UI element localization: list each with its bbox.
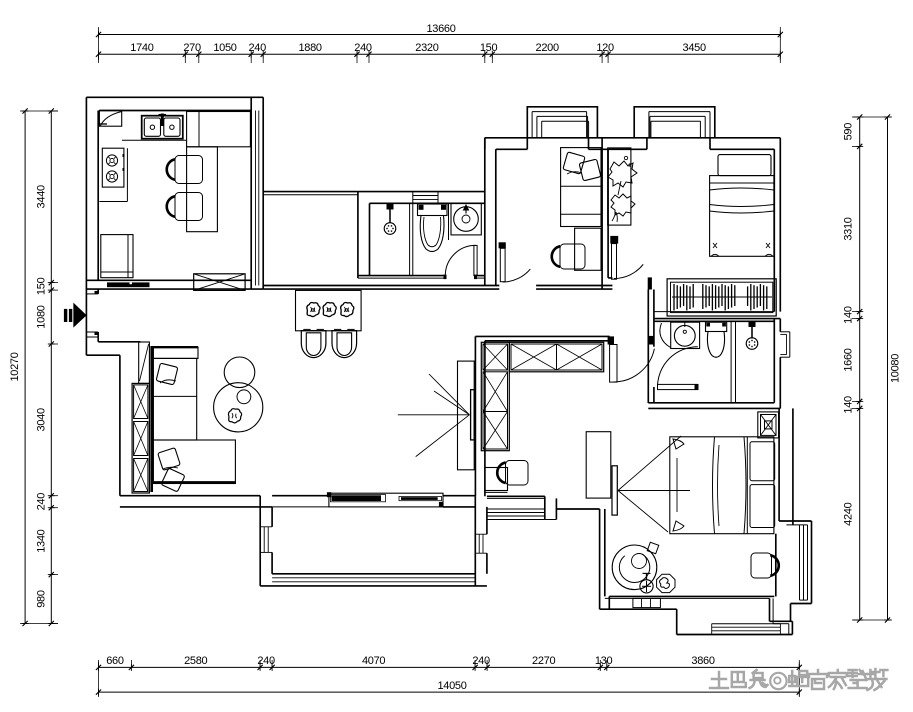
svg-text:240: 240 [472,655,490,667]
svg-text:660: 660 [106,655,124,667]
svg-text:1050: 1050 [213,42,236,54]
svg-text:2270: 2270 [532,655,555,667]
svg-text:2580: 2580 [184,655,207,667]
svg-text:140: 140 [843,306,855,324]
svg-text:240: 240 [248,42,266,54]
svg-text:13660: 13660 [426,23,455,35]
svg-text:3440: 3440 [36,185,48,208]
svg-text:150: 150 [36,277,48,295]
svg-text:3450: 3450 [683,42,706,54]
svg-text:1080: 1080 [36,305,48,328]
svg-text:120: 120 [596,42,614,54]
svg-text:3860: 3860 [691,655,714,667]
svg-text:14050: 14050 [437,680,466,692]
svg-text:240: 240 [36,493,48,511]
svg-text:2200: 2200 [536,42,559,54]
svg-text:10270: 10270 [9,352,21,381]
svg-text:3310: 3310 [843,217,855,240]
svg-text:2320: 2320 [415,42,438,54]
svg-text:150: 150 [480,42,498,54]
svg-text:10080: 10080 [890,354,902,383]
svg-text:1880: 1880 [298,42,321,54]
svg-text:3040: 3040 [36,408,48,431]
svg-text:130: 130 [595,655,613,667]
svg-text:1340: 1340 [36,529,48,552]
svg-text:140: 140 [843,396,855,414]
svg-text:1740: 1740 [130,42,153,54]
svg-text:240: 240 [257,655,275,667]
svg-text:270: 270 [183,42,201,54]
svg-text:980: 980 [36,590,48,608]
svg-text:4240: 4240 [843,502,855,525]
svg-text:590: 590 [843,123,855,141]
svg-text:240: 240 [354,42,372,54]
svg-text:4070: 4070 [362,655,385,667]
svg-text:1660: 1660 [843,348,855,371]
